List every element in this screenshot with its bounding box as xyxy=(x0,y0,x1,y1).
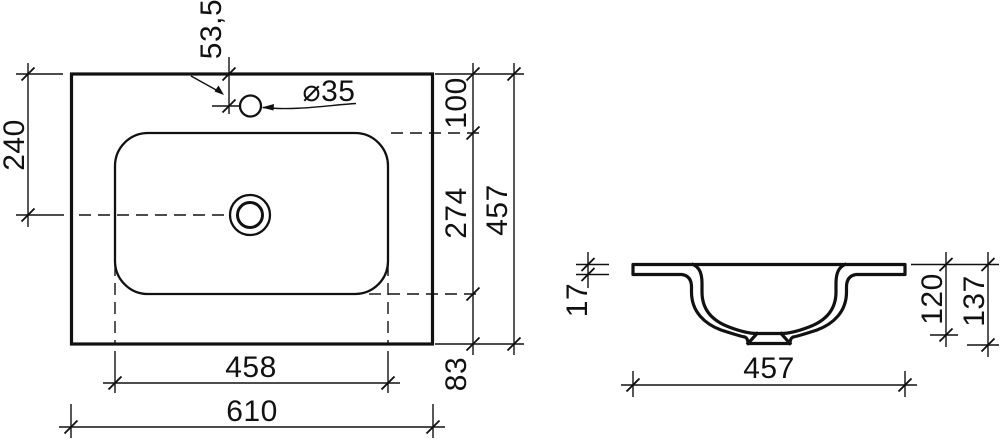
section-view: 17 120 137 457 xyxy=(561,252,999,397)
dim-label-610: 610 xyxy=(226,395,278,428)
drain-inner-circle xyxy=(238,203,263,228)
dim-label-457: 457 xyxy=(481,184,514,236)
faucet-hole xyxy=(240,96,261,117)
dim-label-240: 240 xyxy=(0,119,31,171)
dim-label-100: 100 xyxy=(440,77,473,129)
leader-arrow xyxy=(262,104,275,111)
dim-bowl-width: 457 xyxy=(621,352,917,397)
dim-label-83: 83 xyxy=(440,357,473,391)
leader-line xyxy=(191,76,218,91)
dim-label-hole-diameter: ⌀35 xyxy=(303,75,356,108)
dim-chain-right: 100 274 457 83 xyxy=(369,63,524,391)
dim-overall-width: 610 xyxy=(59,395,445,438)
drawing-canvas: 240 53,5 ⌀35 xyxy=(0,0,1000,441)
dim-hole-diameter: ⌀35 xyxy=(262,75,357,111)
dim-label-137: 137 xyxy=(958,275,991,327)
dim-faucet-offset: 53,5 xyxy=(191,0,239,114)
dim-label-458: 458 xyxy=(225,351,277,384)
washbasin-dimension-drawing: 240 53,5 ⌀35 xyxy=(0,0,1000,441)
basin-section-outline xyxy=(633,265,905,344)
basin-outline xyxy=(115,133,388,294)
dim-label-274: 274 xyxy=(440,187,473,239)
dim-label-53-5: 53,5 xyxy=(195,0,228,59)
countertop-outline xyxy=(72,74,433,344)
leader-arrow xyxy=(215,86,225,96)
dim-label-120: 120 xyxy=(916,273,949,325)
top-view: 240 53,5 ⌀35 xyxy=(0,0,524,438)
dim-heights-right: 120 137 xyxy=(911,252,999,357)
dim-label-17: 17 xyxy=(561,283,594,317)
dim-rim-thickness: 17 xyxy=(561,252,609,317)
dim-side-to-drain: 240 xyxy=(0,63,64,227)
dim-label-457-section: 457 xyxy=(743,352,795,385)
dim-basin-width: 458 xyxy=(103,264,400,393)
